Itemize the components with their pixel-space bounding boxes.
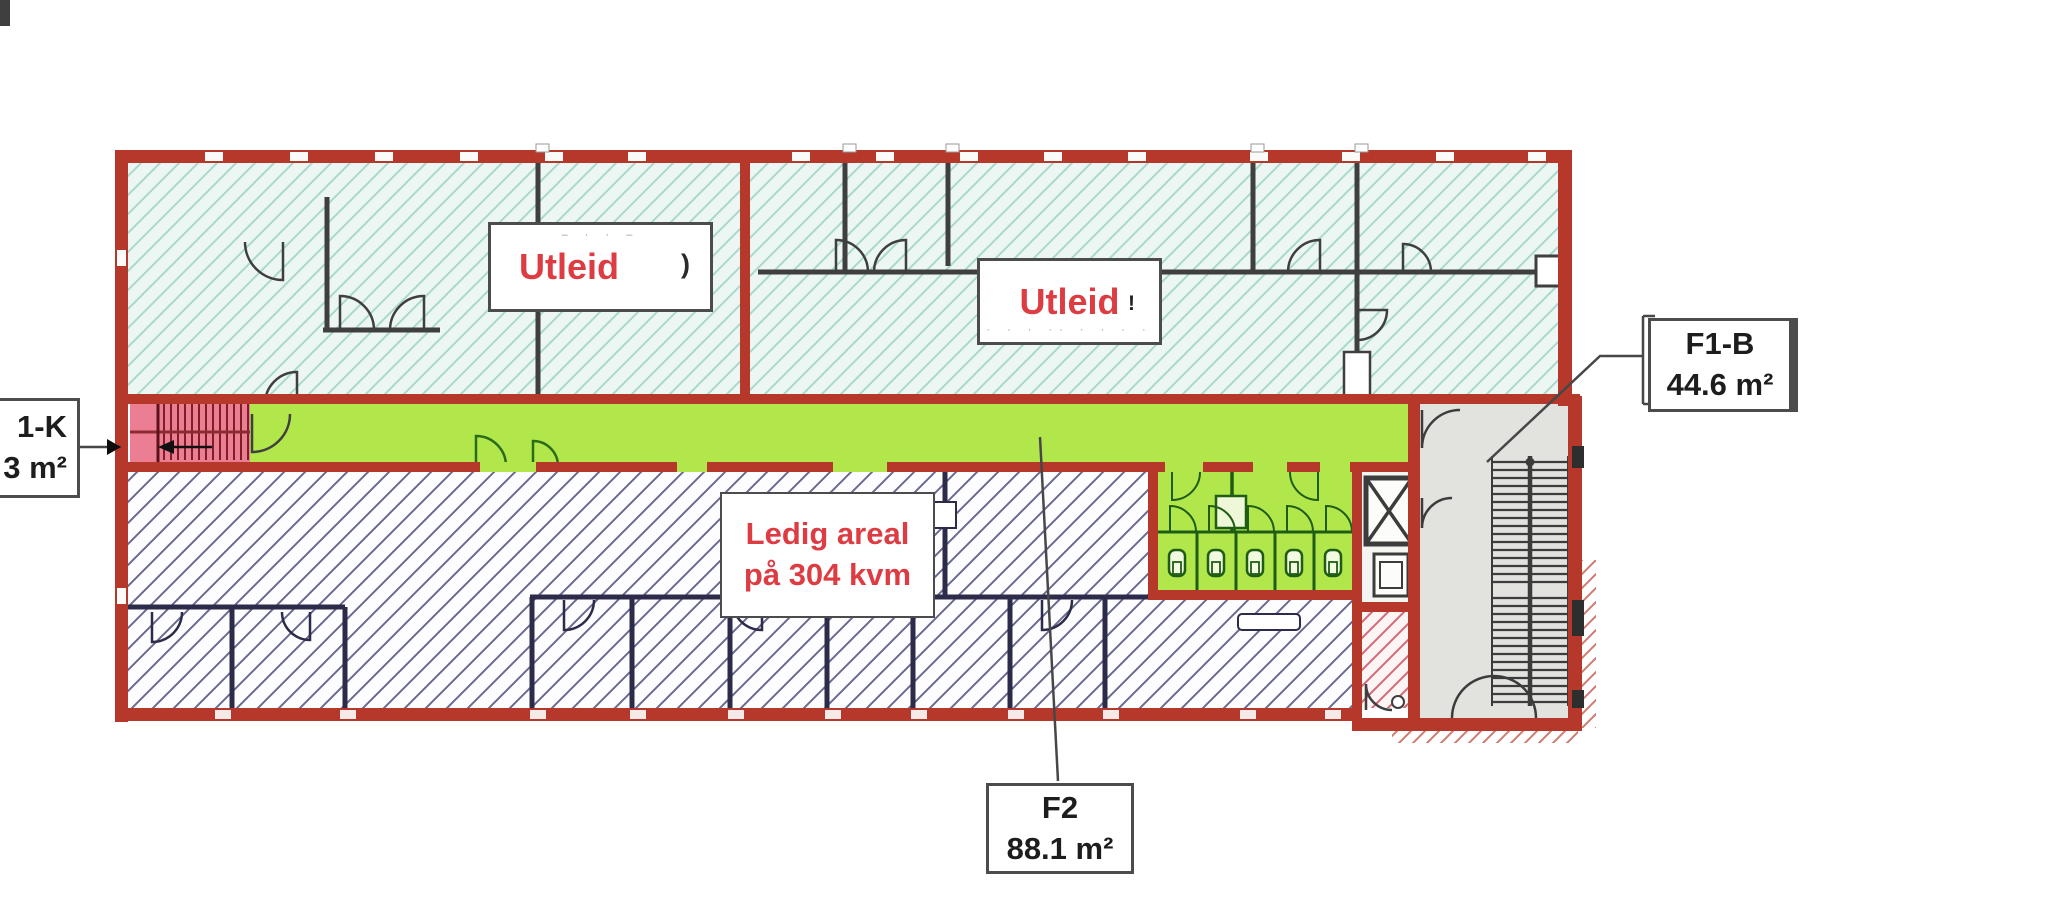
small-hatched-room [1362, 610, 1410, 708]
leased-label-2: Utleid ! · · · ·· · · · · [977, 258, 1162, 345]
leased-label-1-remnant: ) [681, 247, 690, 283]
leased-label-1-text: Utleid [519, 243, 619, 291]
outside-hatch-bottom [1392, 731, 1578, 743]
vacant-area-label: Ledig areal på 304 kvm [720, 492, 935, 618]
unit-f2-area: 88.1 m² [1007, 829, 1114, 870]
unit-f1k-name: 1-K [17, 407, 67, 448]
vacant-area-line1: Ledig areal [746, 514, 910, 555]
unit-f1b-name: F1-B [1686, 324, 1755, 365]
elevator [1366, 478, 1412, 596]
unit-label-f1b: F1-B 44.6 m² [1648, 318, 1798, 412]
leased-label-1: – · · – Utleid ) [488, 222, 713, 312]
unit-label-f1k: 1-K 3 m² [0, 398, 80, 498]
leased-label-2-text: Utleid [1019, 278, 1119, 326]
outside-hatch-right [1582, 560, 1596, 728]
zones [121, 156, 1596, 743]
floor-plan-drawing [0, 0, 2071, 900]
unit-f1k-area: 3 m² [3, 448, 67, 489]
corner-artifact [0, 0, 10, 26]
erased-marks: · · · ·· · · · · [980, 323, 1159, 338]
unit-label-f2: F2 88.1 m² [986, 783, 1134, 874]
floor-plan-page: – · · – Utleid ) Utleid ! · · · ·· · · ·… [0, 0, 2071, 900]
unit-f1b-area: 44.6 m² [1667, 365, 1774, 406]
vacant-area-line2: på 304 kvm [744, 555, 911, 596]
erased-marks: – · · – [491, 228, 710, 243]
leased-label-2-remnant: ! [1128, 290, 1135, 318]
corridor-green [250, 402, 1416, 464]
unit-f2-name: F2 [1042, 788, 1078, 829]
